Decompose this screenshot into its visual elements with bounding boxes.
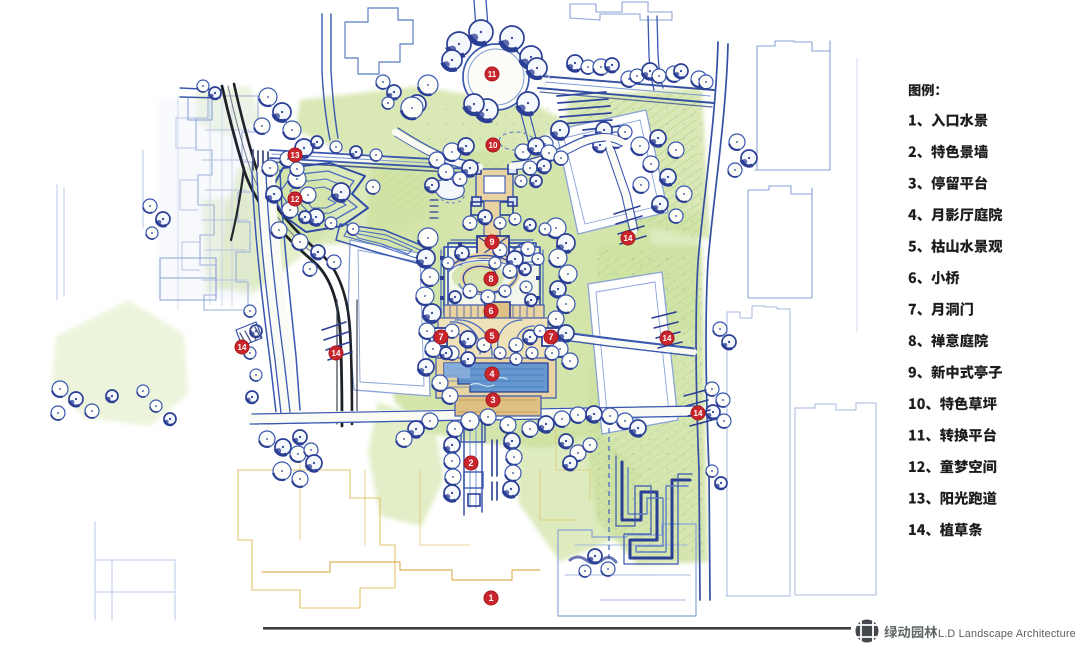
svg-text:7: 7 bbox=[438, 332, 443, 342]
svg-text:14: 14 bbox=[238, 343, 247, 352]
svg-text:2: 2 bbox=[468, 458, 473, 468]
svg-text:L.D Landscape Architecture: L.D Landscape Architecture bbox=[938, 628, 1076, 640]
svg-text:9: 9 bbox=[489, 237, 494, 247]
svg-text:13: 13 bbox=[291, 151, 300, 160]
svg-text:14: 14 bbox=[663, 334, 672, 343]
svg-text:12: 12 bbox=[291, 195, 300, 204]
svg-text:5: 5 bbox=[489, 331, 494, 341]
svg-text:14: 14 bbox=[332, 349, 341, 358]
svg-text:1: 1 bbox=[488, 593, 493, 603]
svg-text:10: 10 bbox=[489, 141, 498, 150]
svg-text:14: 14 bbox=[624, 234, 633, 243]
svg-text:7: 7 bbox=[548, 332, 553, 342]
svg-text:11: 11 bbox=[488, 70, 497, 79]
svg-text:8: 8 bbox=[488, 274, 493, 284]
svg-text:6: 6 bbox=[488, 306, 493, 316]
svg-text:4: 4 bbox=[489, 369, 494, 379]
svg-text:14: 14 bbox=[694, 409, 703, 418]
svg-text:3: 3 bbox=[490, 395, 495, 405]
